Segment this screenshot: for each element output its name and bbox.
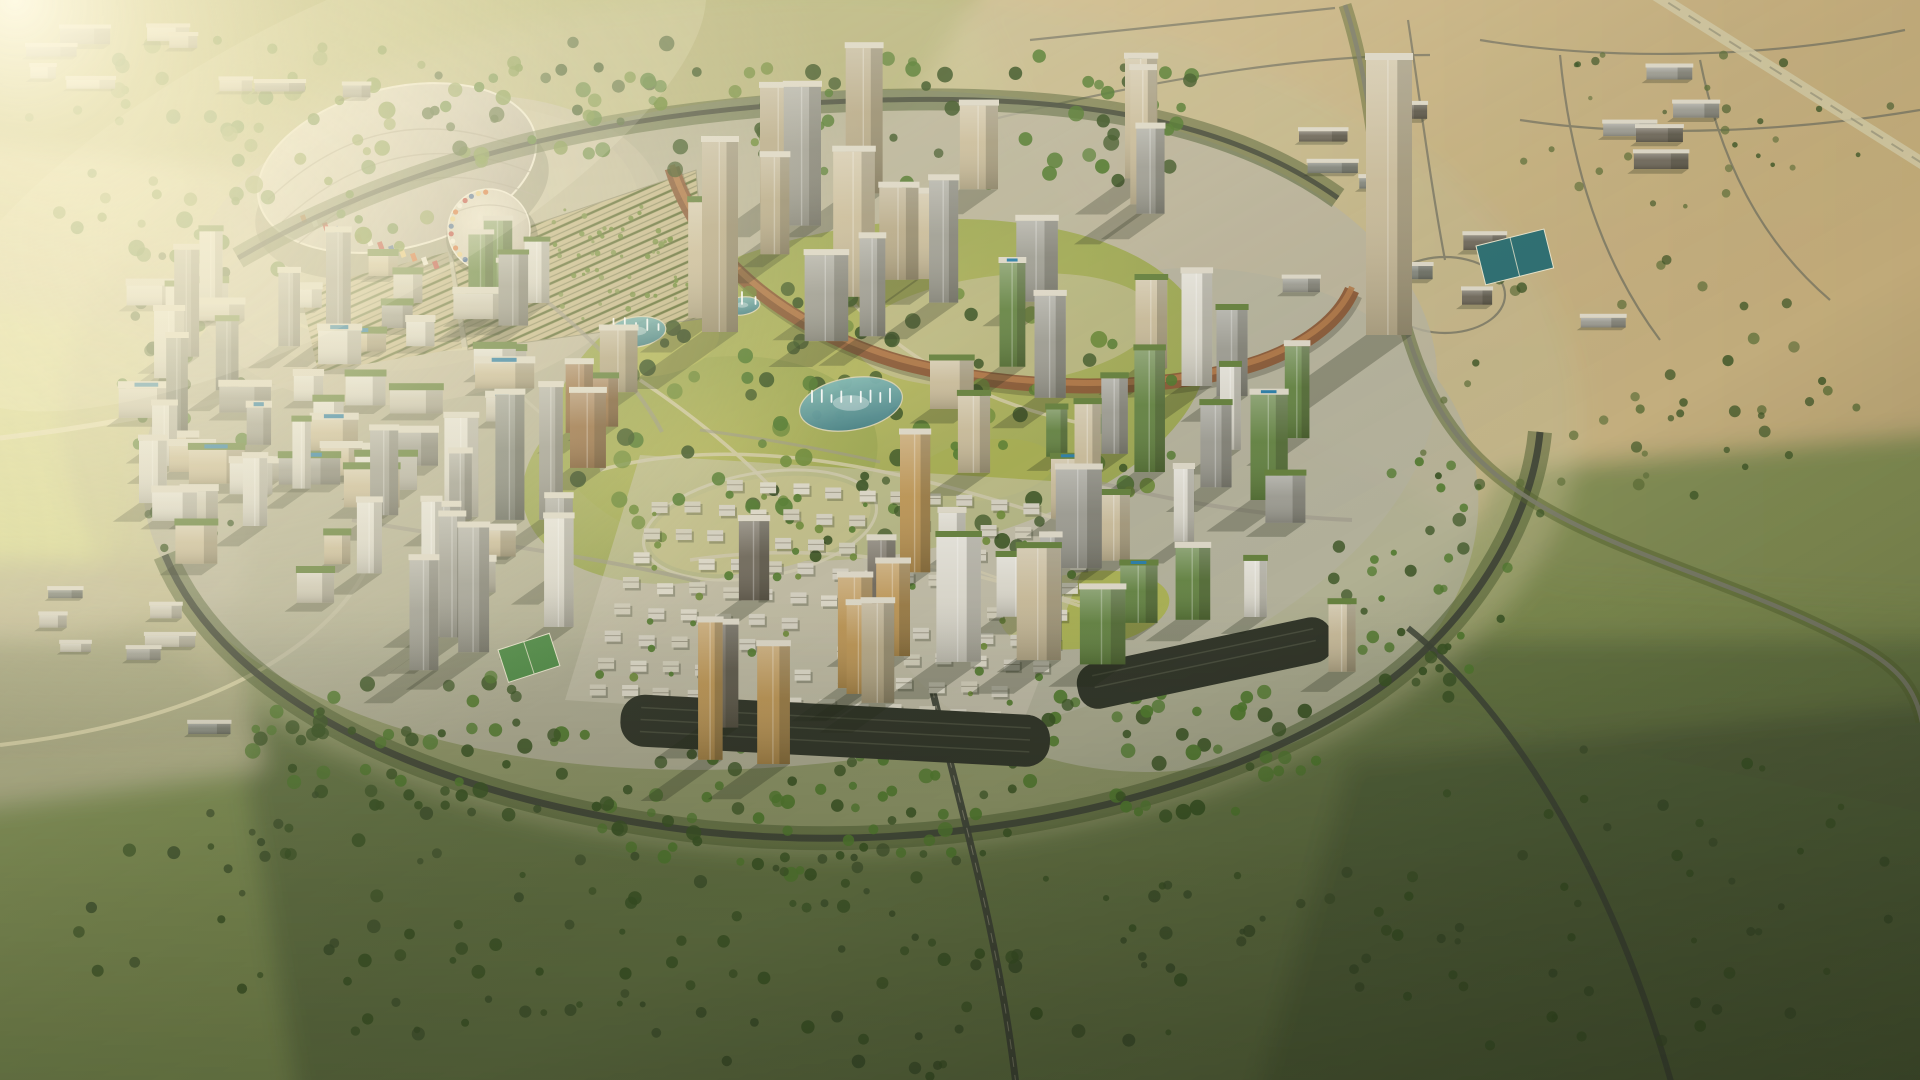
lighting-overlay xyxy=(0,0,1920,1080)
foreground-shade xyxy=(0,0,1920,1080)
render-svg xyxy=(0,0,1920,1080)
aerial-city-render xyxy=(0,0,1920,1080)
